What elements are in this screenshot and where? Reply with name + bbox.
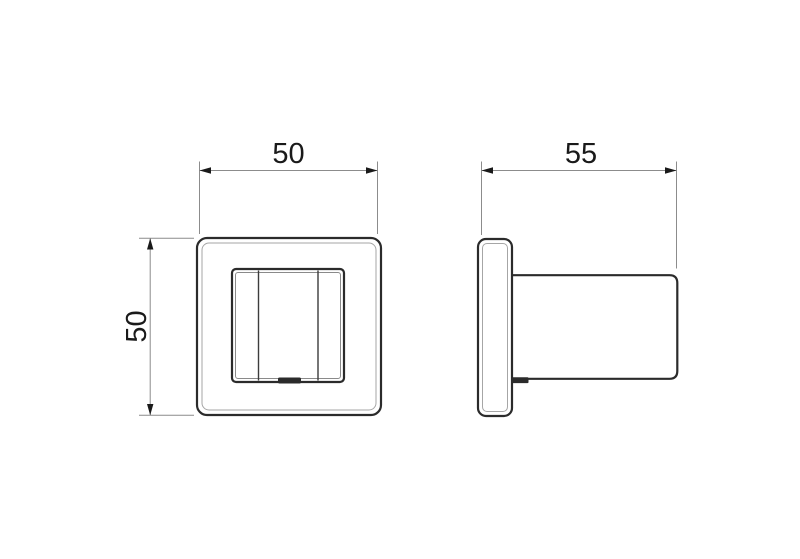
side-view [478, 239, 677, 416]
dim-label-front-height: 50 [121, 310, 153, 342]
dim-front-height: 50 [121, 238, 194, 415]
dim-front-width: 50 [200, 138, 378, 234]
arrowhead-down-icon [147, 404, 153, 415]
arrowhead-right-icon [366, 167, 378, 173]
front-arm-outline [232, 269, 344, 382]
side-bottom-lip [512, 377, 529, 383]
arrowhead-right-icon [665, 167, 677, 173]
front-view [197, 238, 381, 415]
dim-label-side-depth: 55 [565, 138, 597, 170]
arrowhead-left-icon [200, 167, 212, 173]
side-arm-outline [510, 275, 677, 379]
dim-label-front-width: 50 [272, 138, 304, 170]
arrowhead-up-icon [147, 238, 153, 249]
drawing-canvas: 50 50 55 [0, 0, 800, 559]
arrowhead-left-icon [482, 167, 494, 173]
front-bottom-lip [278, 378, 301, 384]
side-plate-outline [478, 239, 512, 416]
technical-drawing: 50 50 55 [0, 0, 800, 559]
